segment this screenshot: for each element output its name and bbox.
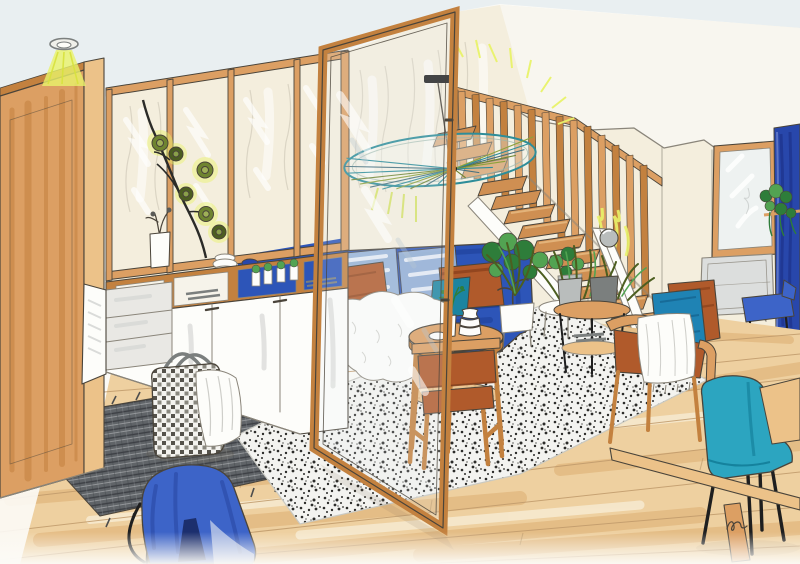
left-wardrobe bbox=[0, 58, 104, 498]
sideboard-open-door bbox=[82, 284, 106, 384]
wardrobe-corner-post bbox=[84, 58, 104, 474]
planter-box bbox=[500, 303, 534, 333]
door-glass bbox=[314, 12, 455, 528]
slide-top-disc bbox=[600, 229, 618, 247]
sketch-canvas: open-plan living room with glass partiti… bbox=[0, 0, 800, 564]
interior-sketch: open-plan living room with glass partiti… bbox=[0, 0, 800, 564]
bottom-paper-fade bbox=[0, 532, 800, 564]
niche-interior-2 bbox=[174, 272, 228, 306]
